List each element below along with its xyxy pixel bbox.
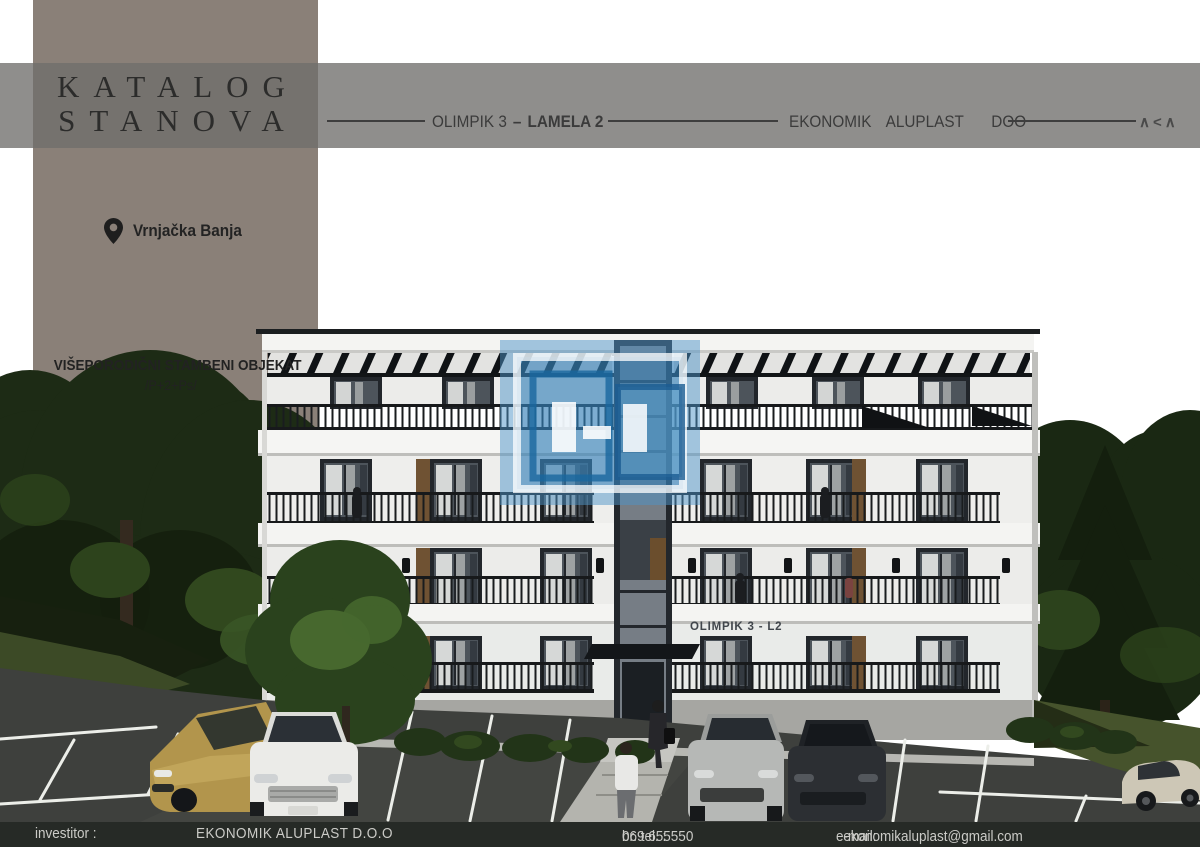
company-name: EKONOMIK ALUPLAST — [789, 112, 964, 131]
catalog-title-line2: STANOVA — [40, 104, 302, 138]
header-divider-line-3 — [1008, 120, 1136, 122]
company-logo-watermark — [500, 340, 700, 505]
header-divider-line-2 — [608, 120, 778, 122]
catalog-title-line1: KATALOG — [40, 70, 302, 104]
car-dark — [788, 720, 886, 821]
building-type-label: VIŠEPORODIČNI STAMBENI OBJEKAT — [54, 356, 302, 375]
footer-bar: investitor : EKONOMIK ALUPLAST D.O.O br.… — [0, 822, 1200, 847]
email-address: ekonomikaluplast@gmail.com — [843, 828, 1023, 845]
building-name: LAMELA 2 — [527, 112, 603, 131]
location-pin-icon — [104, 218, 123, 244]
building-info-block: VIŠEPORODIČNI STAMBENI OBJEKAT /P+2+Ps/ — [40, 356, 302, 395]
company-logo-mark: ∧<∧ — [1139, 113, 1179, 131]
location-label: Vrnjačka Banja — [133, 221, 242, 241]
building-floors-label: /P+2+Ps/ — [145, 375, 197, 395]
catalog-page: OLIMPIK 3 - L2 — [0, 0, 1200, 847]
location-block: Vrnjačka Banja — [104, 218, 254, 244]
investor-name: EKONOMIK ALUPLAST D.O.O — [196, 825, 393, 842]
company-title: EKONOMIK ALUPLAST DOO — [789, 112, 1053, 132]
project-title: OLIMPIK 3 – LAMELA 2 — [432, 112, 622, 132]
building-sign: OLIMPIK 3 - L2 — [690, 621, 782, 633]
project-name: OLIMPIK 3 — [432, 112, 507, 131]
catalog-title: KATALOG STANOVA — [40, 70, 302, 138]
header-divider-line-1 — [327, 120, 425, 122]
project-separator: – — [513, 112, 522, 131]
investor-label: investitor : — [35, 825, 97, 842]
phone-number: 069 655550 — [622, 828, 693, 845]
